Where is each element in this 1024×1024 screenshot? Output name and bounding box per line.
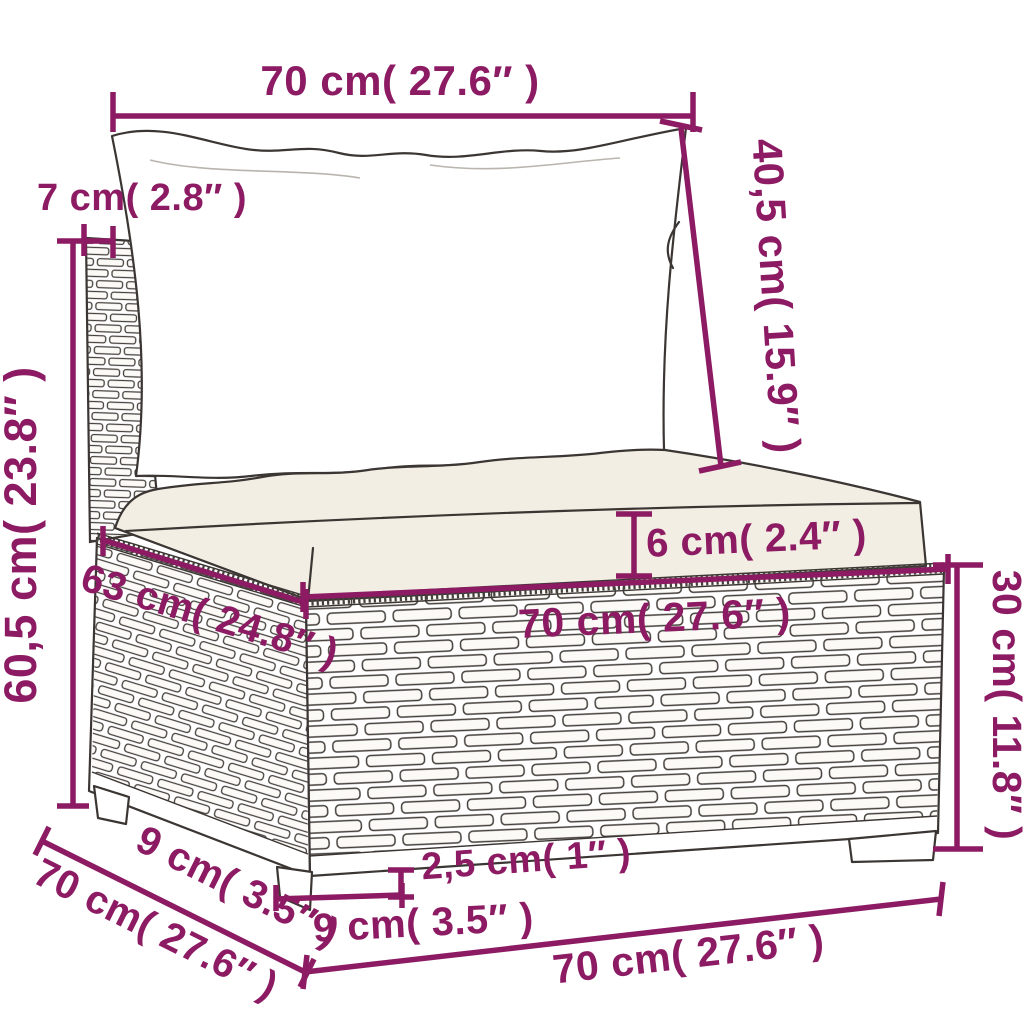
dimension-top-width-label: 70 cm( 27.6″ ) <box>260 57 539 104</box>
dimension-back-cushion-height: 40,5 cm( 15.9″ ) <box>660 121 810 471</box>
dimension-backrest-height-label: 60,5 cm( 23.8″ ) <box>0 366 46 703</box>
dimension-panel-thickness-label: 7 cm( 2.8″ ) <box>37 177 247 219</box>
dimension-top-width: 70 cm( 27.6″ ) <box>113 57 693 132</box>
diagram-svg: 70 cm( 27.6″ ) 7 cm( 2.8″ ) 40,5 cm( 15.… <box>0 0 1024 1024</box>
dimension-backrest-height: 60,5 cm( 23.8″ ) <box>0 241 89 806</box>
dimension-front-leg-label: 9 cm( 3.5″ ) <box>312 895 535 950</box>
dimension-base-height-label: 30 cm( 11.8″ ) <box>984 570 1024 841</box>
dimension-base-height: 30 cm( 11.8″ ) <box>933 565 1024 849</box>
furniture-dimension-diagram: 70 cm( 27.6″ ) 7 cm( 2.8″ ) 40,5 cm( 15.… <box>0 0 1024 1024</box>
dimension-back-cushion-height-label: 40,5 cm( 15.9″ ) <box>743 137 809 455</box>
